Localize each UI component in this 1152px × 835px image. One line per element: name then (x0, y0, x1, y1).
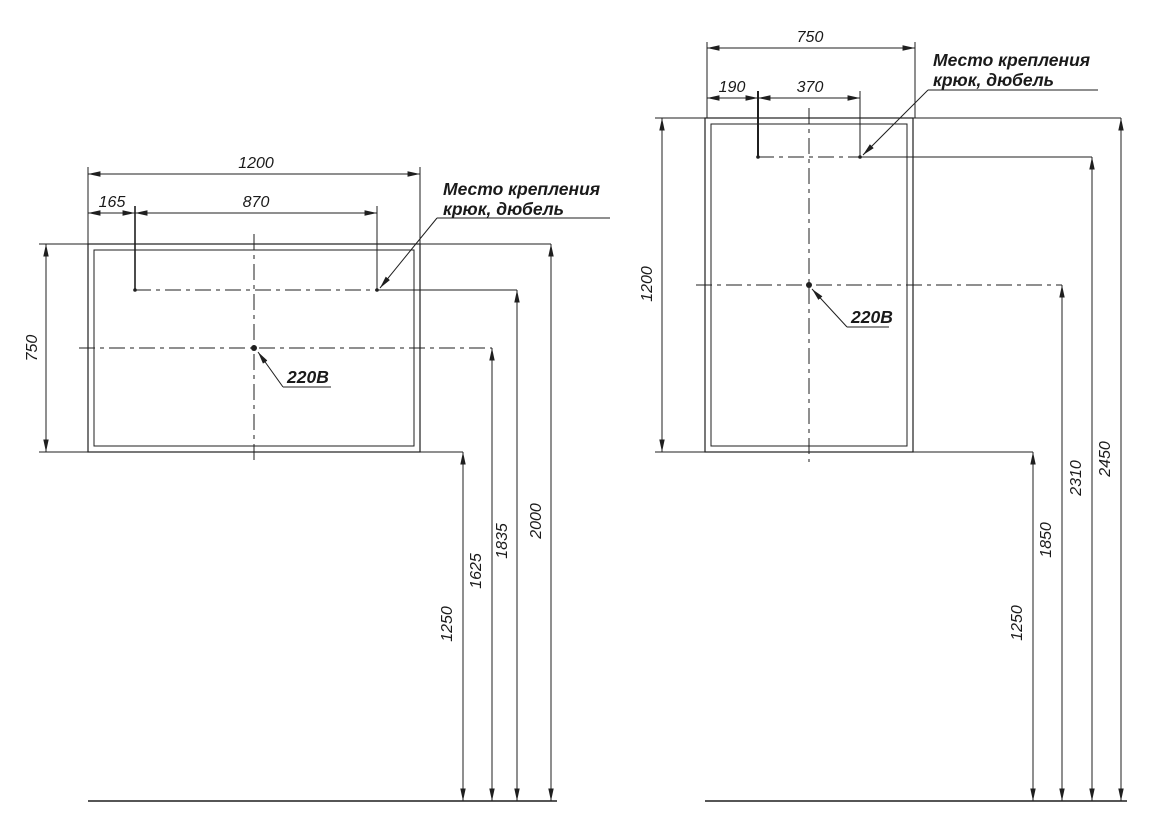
dim-text-bottom-height: 1250 (439, 606, 456, 642)
dim-text-bottom-height: 1250 (1009, 605, 1026, 641)
mount-note-line1: Место крепления (933, 50, 1090, 70)
drawing-canvas: 1200 165 870 750 1250 1625 1835 2000 (0, 0, 1152, 835)
mount-note: Место крепления крюк, дюбель (863, 50, 1098, 155)
socket-point (806, 282, 812, 288)
mount-note-line2: крюк, дюбель (933, 70, 1054, 90)
leader-arrow (812, 289, 847, 327)
width-dimensions: 750 190 370 (707, 29, 915, 157)
dim-text-top-height: 2000 (528, 503, 545, 540)
dim-text-socket-height: 1850 (1038, 522, 1055, 558)
dim-text-height: 1200 (639, 266, 656, 302)
leader-arrow (863, 90, 928, 155)
power-note: 220В (251, 345, 331, 387)
power-note-text: 220В (850, 307, 893, 327)
power-note-text: 220В (286, 367, 329, 387)
dim-text-width: 1200 (238, 155, 274, 172)
dim-text-socket-height: 1625 (468, 553, 485, 589)
dim-text-height: 750 (24, 335, 41, 362)
leader-arrow (380, 218, 437, 288)
centerlines (696, 108, 1092, 462)
centerlines (79, 234, 517, 462)
mount-note-line1: Место крепления (443, 179, 600, 199)
height-dimension: 1200 (639, 118, 705, 452)
dim-text-hook-offset: 190 (719, 79, 746, 96)
dim-text-hook-span: 370 (797, 79, 824, 96)
floor-dimensions: 1250 1850 2310 2450 (705, 118, 1127, 801)
dim-text-top-height: 2450 (1097, 441, 1114, 478)
floor-dimensions: 1250 1625 1835 2000 (88, 244, 557, 801)
dim-text-hook-height: 1835 (494, 523, 511, 559)
technical-drawing: 1200 165 870 750 1250 1625 1835 2000 (0, 0, 1152, 835)
socket-point (251, 345, 257, 351)
portrait-drawing: 750 190 370 1200 1250 1850 2310 2450 (639, 29, 1127, 801)
dim-text-width: 750 (797, 29, 824, 46)
mount-note-line2: крюк, дюбель (443, 199, 564, 219)
leader-arrow (258, 352, 283, 387)
dim-text-hook-offset: 165 (99, 194, 126, 211)
power-note: 220В (806, 282, 893, 327)
dim-text-hook-span: 870 (243, 194, 270, 211)
dim-text-hook-height: 2310 (1068, 460, 1085, 497)
height-dimension: 750 (24, 244, 88, 452)
landscape-drawing: 1200 165 870 750 1250 1625 1835 2000 (24, 155, 610, 801)
